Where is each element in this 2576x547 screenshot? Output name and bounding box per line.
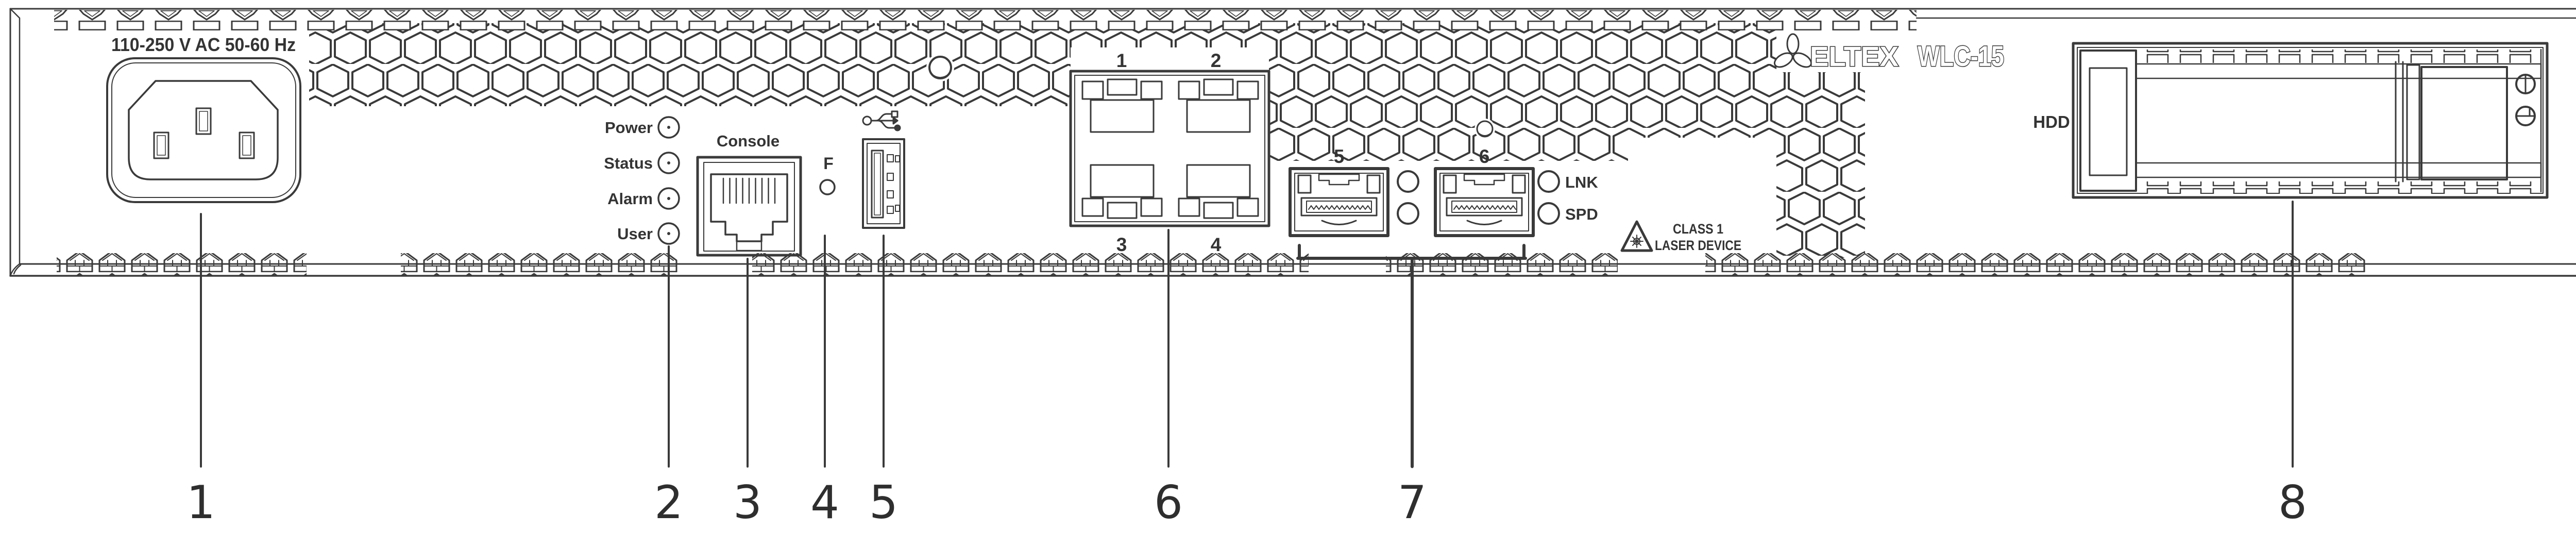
hdd-bottom-slot-rail [2136, 181, 2540, 194]
hdd-label: HDD [2033, 112, 2070, 131]
console-label: Console [717, 132, 779, 150]
led-label-alarm: Alarm [607, 190, 653, 208]
led-label-status: Status [604, 154, 653, 172]
callout-number-7: 7 [1398, 476, 1427, 529]
eth-port3-label: 3 [1116, 234, 1127, 255]
callout-number-5: 5 [869, 476, 898, 529]
callout-number-2: 2 [654, 476, 683, 529]
callout-bracket-7 [1298, 245, 1526, 467]
honeycomb-vent-band [309, 23, 1071, 106]
front-panel-diagram: 110-250 V AC 50-60 Hz Power Status Alarm… [0, 0, 2576, 544]
led-label-power: Power [605, 119, 653, 137]
laser-warning-line2: LASER DEVICE [1655, 238, 1741, 253]
led-label-user: User [617, 225, 653, 243]
lnk-led-label: LNK [1565, 173, 1598, 191]
model-name: WLC-15 [1918, 40, 2004, 72]
sfp-port6-label: 6 [1479, 146, 1490, 167]
eth-port2-label: 2 [1211, 50, 1222, 71]
laser-warning-line1: CLASS 1 [1673, 221, 1723, 237]
function-button-label: F [823, 154, 834, 173]
callout-number-1: 1 [187, 476, 215, 529]
callout-number-8: 8 [2278, 476, 2307, 529]
callout-number-4: 4 [810, 476, 839, 529]
spd-led-label: SPD [1565, 205, 1598, 223]
honeycomb-vent-band [1776, 72, 1865, 258]
hdd-top-slot-rail [2136, 49, 2540, 63]
honeycomb-vent-band [1269, 23, 1628, 161]
top-vent-row [54, 10, 1917, 30]
honeycomb-vent-band [1628, 23, 1776, 138]
panel-screw [926, 54, 954, 81]
callout-number-3: 3 [733, 476, 762, 529]
eth-port1-label: 1 [1116, 50, 1127, 71]
power-rating-label: 110-250 V AC 50-60 Hz [111, 34, 296, 55]
eth-port4-label: 4 [1211, 234, 1222, 255]
brand-name: ELTEX [1810, 41, 1899, 72]
sfp-port5-label: 5 [1334, 146, 1345, 167]
callout-number-6: 6 [1154, 476, 1183, 529]
panel-screw [1475, 119, 1495, 139]
